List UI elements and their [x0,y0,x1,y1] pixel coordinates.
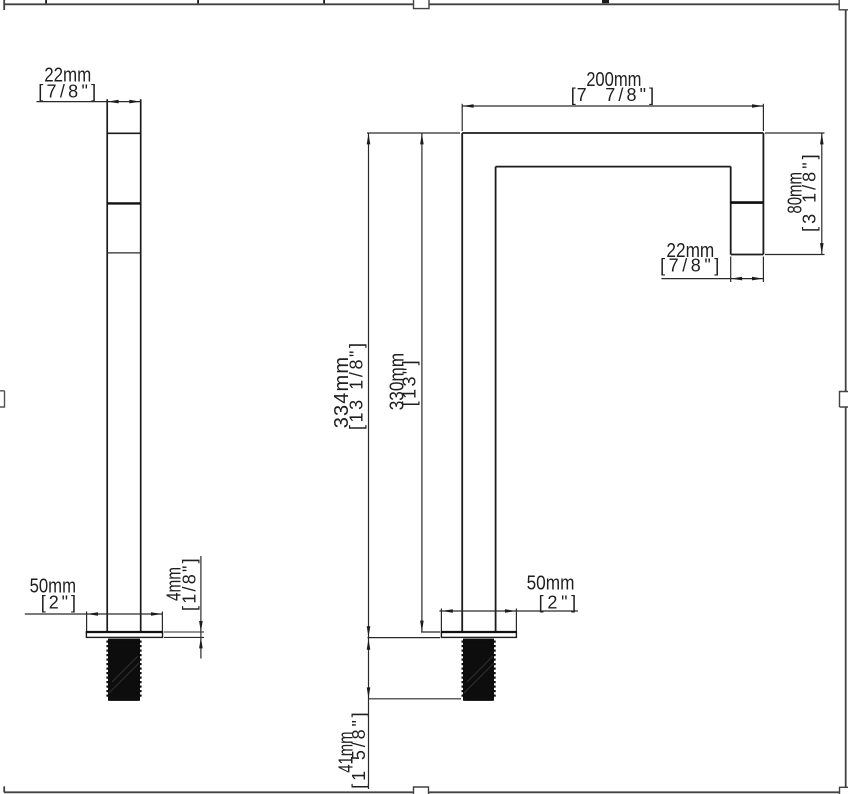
svg-text:[1/8"]: [1/8"] [179,558,199,611]
svg-text:50mm: 50mm [527,572,575,594]
svg-text:[3 1/8"]: [3 1/8"] [799,154,819,232]
svg-text:[7/8"]: [7/8"] [38,82,96,102]
svg-text:[13 1/8"]: [13 1/8"] [346,343,366,430]
svg-text:[1 5/8"]: [1 5/8"] [349,712,369,788]
svg-text:[7: [7 [571,85,587,105]
